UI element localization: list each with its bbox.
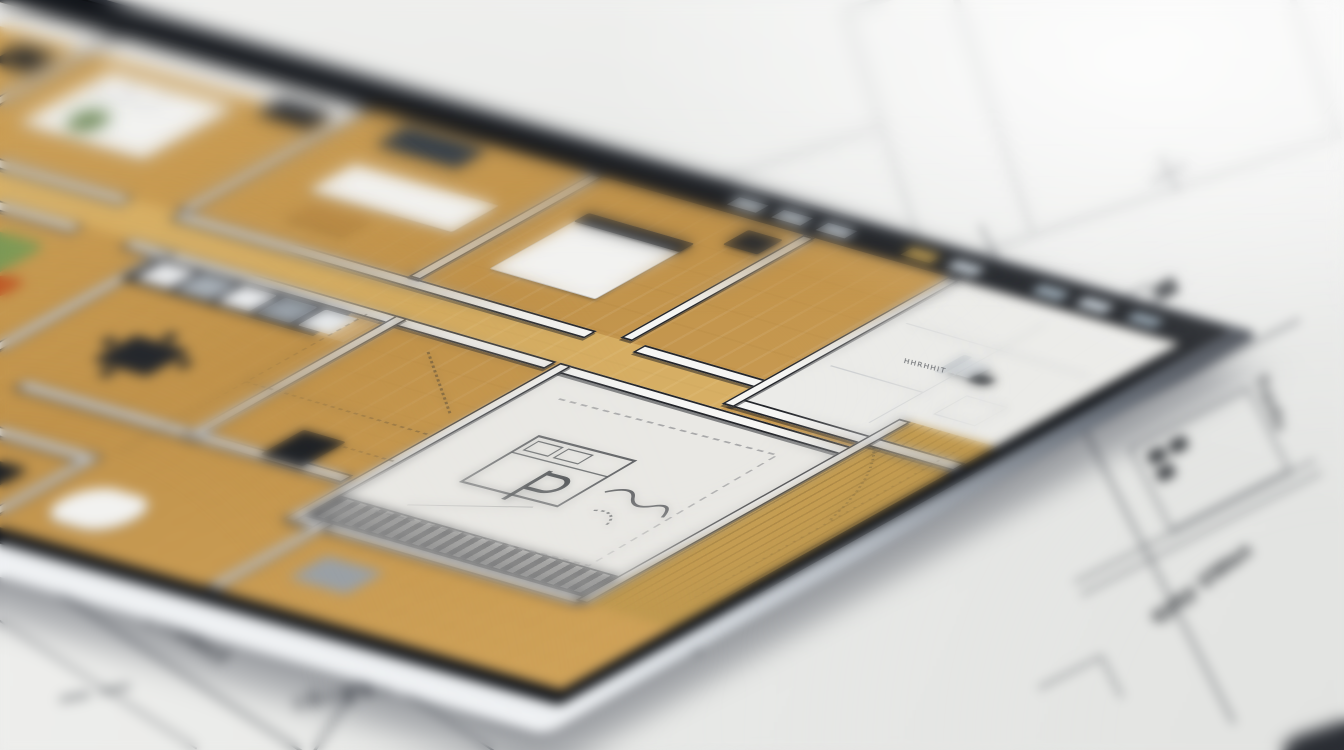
chair: [174, 359, 194, 368]
window: [723, 195, 773, 214]
bathtub: [34, 482, 164, 535]
window-amber: [896, 246, 946, 265]
window: [1025, 283, 1075, 302]
armchair: [0, 274, 27, 297]
coffee-table: [285, 203, 371, 235]
chair: [99, 337, 119, 346]
scene: W. Wijnrlı ıwnŀś ĸöbırŕb ĝøbocŕ Tıúıllıı…: [0, 0, 1344, 750]
chair: [97, 368, 117, 377]
counter: [288, 556, 385, 595]
window: [811, 221, 861, 240]
window: [1120, 310, 1170, 329]
chair: [160, 332, 180, 341]
floor-cabinet: [0, 458, 28, 493]
window: [1070, 296, 1120, 315]
tv-screen: [375, 127, 486, 167]
window: [941, 258, 991, 277]
window: [767, 208, 817, 227]
